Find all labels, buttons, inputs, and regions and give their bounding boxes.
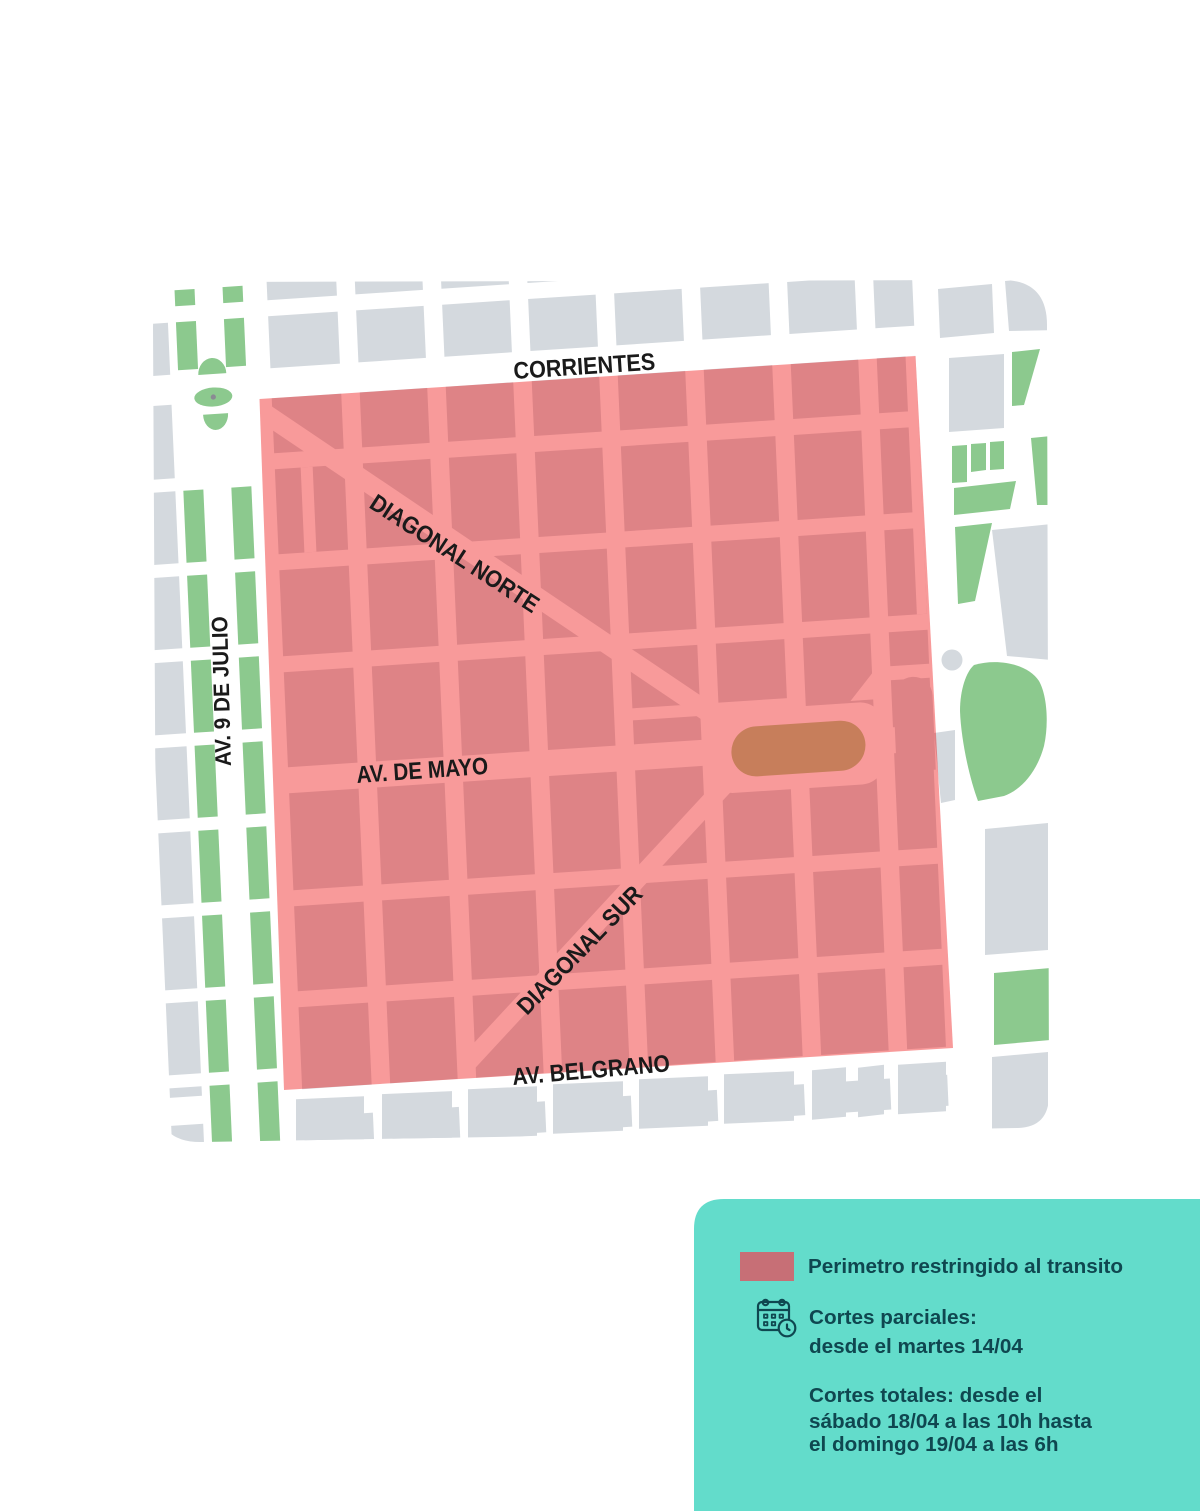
svg-text:sábado 18/04 a las 10h hasta: sábado 18/04 a las 10h hasta <box>809 1410 1092 1433</box>
svg-text:Cortes parciales:: Cortes parciales: <box>809 1306 977 1329</box>
svg-text:AV. 9 DE JULIO: AV. 9 DE JULIO <box>207 616 236 767</box>
svg-text:Perimetro restringido al trans: Perimetro restringido al transito <box>808 1255 1123 1278</box>
svg-text:Cortes totales: desde el: Cortes totales: desde el <box>809 1384 1042 1407</box>
svg-text:desde el martes 14/04: desde el martes 14/04 <box>809 1335 1023 1358</box>
svg-text:el domingo 19/04 a las 6h: el domingo 19/04 a las 6h <box>809 1433 1059 1456</box>
